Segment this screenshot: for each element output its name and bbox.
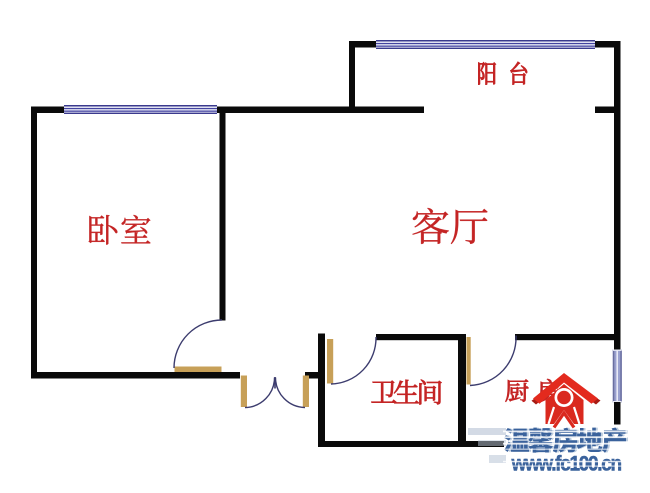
svg-text:www.fc100.cn: www.fc100.cn xyxy=(511,453,622,476)
